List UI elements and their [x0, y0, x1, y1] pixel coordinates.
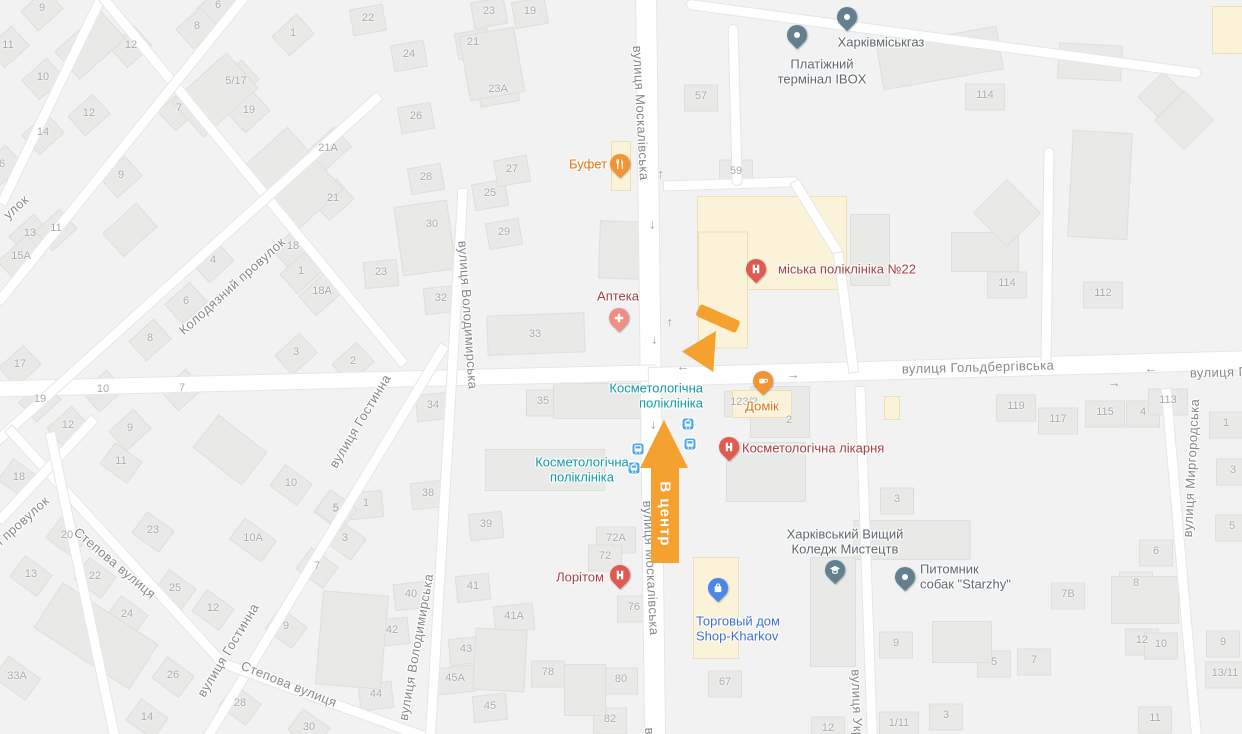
direction-arrow-label: В центр — [657, 481, 674, 546]
direction-annotation: В центр — [0, 0, 1242, 734]
annotation-bar — [695, 304, 740, 334]
direction-arrow-head — [640, 420, 688, 468]
direction-arrow-shaft: В центр — [651, 464, 679, 563]
map-canvas[interactable]: 911101212146815/1719796222423192123A2628… — [0, 0, 1242, 734]
annotation-triangle — [682, 331, 716, 372]
